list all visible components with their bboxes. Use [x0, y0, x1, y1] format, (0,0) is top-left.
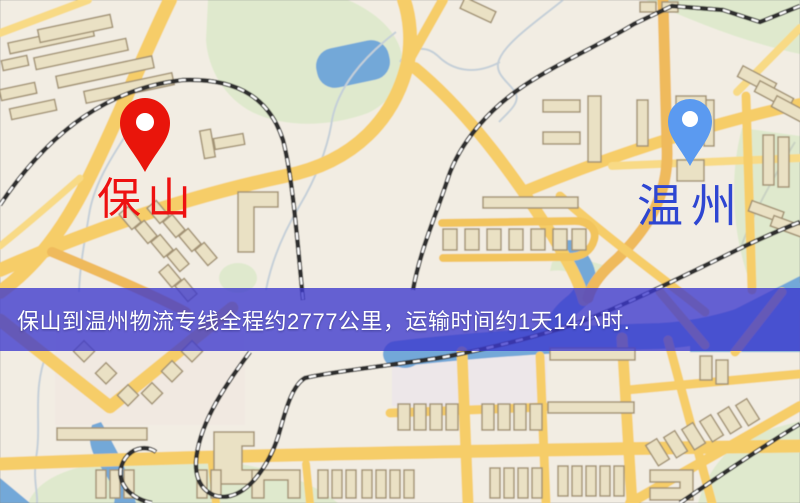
destination-label: 温州 — [637, 180, 745, 232]
pin-hole — [682, 111, 698, 127]
logistics-route-map: 保山 温州 保山到温州物流专线全程约2777公里，运输时间约1天14小时. — [0, 0, 800, 503]
map-image — [0, 0, 800, 503]
pin-hole — [136, 113, 154, 131]
route-info-text: 保山到温州物流专线全程约2777公里，运输时间约1天14小时. — [0, 304, 630, 336]
origin-label: 保山 — [97, 175, 197, 224]
route-info-banner: 保山到温州物流专线全程约2777公里，运输时间约1天14小时. — [0, 288, 800, 351]
